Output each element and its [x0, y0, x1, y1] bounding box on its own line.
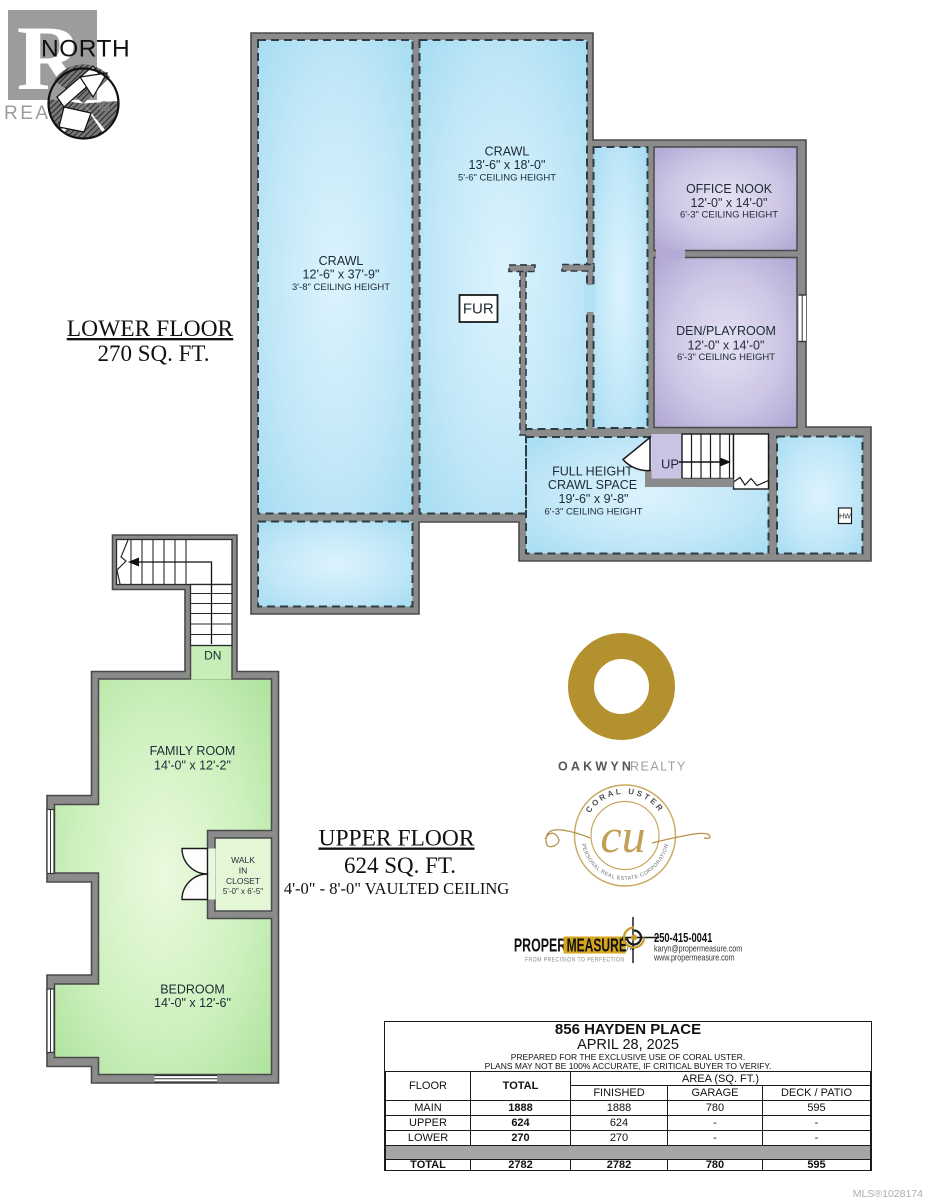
svg-text:FUR: FUR [463, 301, 494, 318]
svg-text:MEASURE: MEASURE [567, 936, 627, 956]
svg-text:LOWER FLOOR: LOWER FLOOR [67, 316, 234, 342]
svg-text:R: R [101, 104, 106, 111]
svg-text:UP: UP [661, 457, 679, 472]
svg-text:13'-6" x 18'-0": 13'-6" x 18'-0" [469, 158, 546, 172]
svg-text:6'-3" CEILING HEIGHT: 6'-3" CEILING HEIGHT [677, 352, 775, 363]
svg-text:12'-0" x 14'-0": 12'-0" x 14'-0" [688, 339, 765, 353]
svg-text:12'-0" x 14'-0": 12'-0" x 14'-0" [691, 196, 768, 210]
svg-text:BEDROOM: BEDROOM [160, 982, 225, 996]
svg-text:CRAWL: CRAWL [319, 254, 364, 268]
svg-text:OFFICE NOOK: OFFICE NOOK [686, 182, 773, 196]
svg-text:OAKWYN: OAKWYN [558, 760, 634, 774]
svg-text:CRAWL: CRAWL [485, 145, 530, 159]
svg-text:HW: HW [839, 514, 851, 521]
svg-text:5'-6" CEILING HEIGHT: 5'-6" CEILING HEIGHT [458, 173, 556, 184]
svg-text:4'-0" - 8'-0" VAULTED CEILING: 4'-0" - 8'-0" VAULTED CEILING [284, 879, 509, 898]
svg-text:5'-0" x 6'-5": 5'-0" x 6'-5" [223, 887, 263, 896]
svg-text:REALTY: REALTY [630, 760, 687, 774]
svg-text:CLOSET: CLOSET [226, 876, 260, 886]
svg-text:624 SQ. FT.: 624 SQ. FT. [344, 853, 456, 878]
svg-text:www.propermeasure.com: www.propermeasure.com [653, 951, 734, 962]
svg-text:IN: IN [239, 866, 248, 876]
svg-text:MLS®1028174: MLS®1028174 [853, 1188, 923, 1200]
svg-text:FROM PRECISION TO PERFECTION: FROM PRECISION TO PERFECTION [525, 957, 625, 964]
svg-text:DN: DN [204, 649, 221, 663]
svg-text:PROPER: PROPER [514, 936, 567, 956]
svg-text:DEN/PLAYROOM: DEN/PLAYROOM [676, 324, 776, 338]
svg-text:270 SQ. FT.: 270 SQ. FT. [97, 341, 209, 366]
svg-text:12'-6" x 37'-9": 12'-6" x 37'-9" [303, 268, 380, 282]
svg-text:6'-3" CEILING HEIGHT: 6'-3" CEILING HEIGHT [680, 210, 778, 221]
svg-text:cu: cu [600, 810, 645, 863]
svg-text:FAMILY ROOM: FAMILY ROOM [150, 744, 236, 758]
svg-text:NORTH: NORTH [41, 36, 130, 63]
svg-text:14'-0" x 12'-6": 14'-0" x 12'-6" [154, 996, 231, 1010]
svg-text:6'-3" CEILING HEIGHT: 6'-3" CEILING HEIGHT [544, 506, 642, 517]
svg-text:UPPER FLOOR: UPPER FLOOR [318, 826, 474, 852]
svg-text:3'-8" CEILING HEIGHT: 3'-8" CEILING HEIGHT [292, 282, 390, 293]
svg-text:14'-0" x 12'-2": 14'-0" x 12'-2" [154, 759, 231, 773]
svg-text:19'-6" x 9'-8": 19'-6" x 9'-8" [559, 492, 629, 506]
svg-text:CRAWL SPACE: CRAWL SPACE [548, 478, 637, 492]
svg-text:WALK: WALK [231, 855, 255, 865]
svg-text:FULL HEIGHT: FULL HEIGHT [552, 464, 633, 478]
